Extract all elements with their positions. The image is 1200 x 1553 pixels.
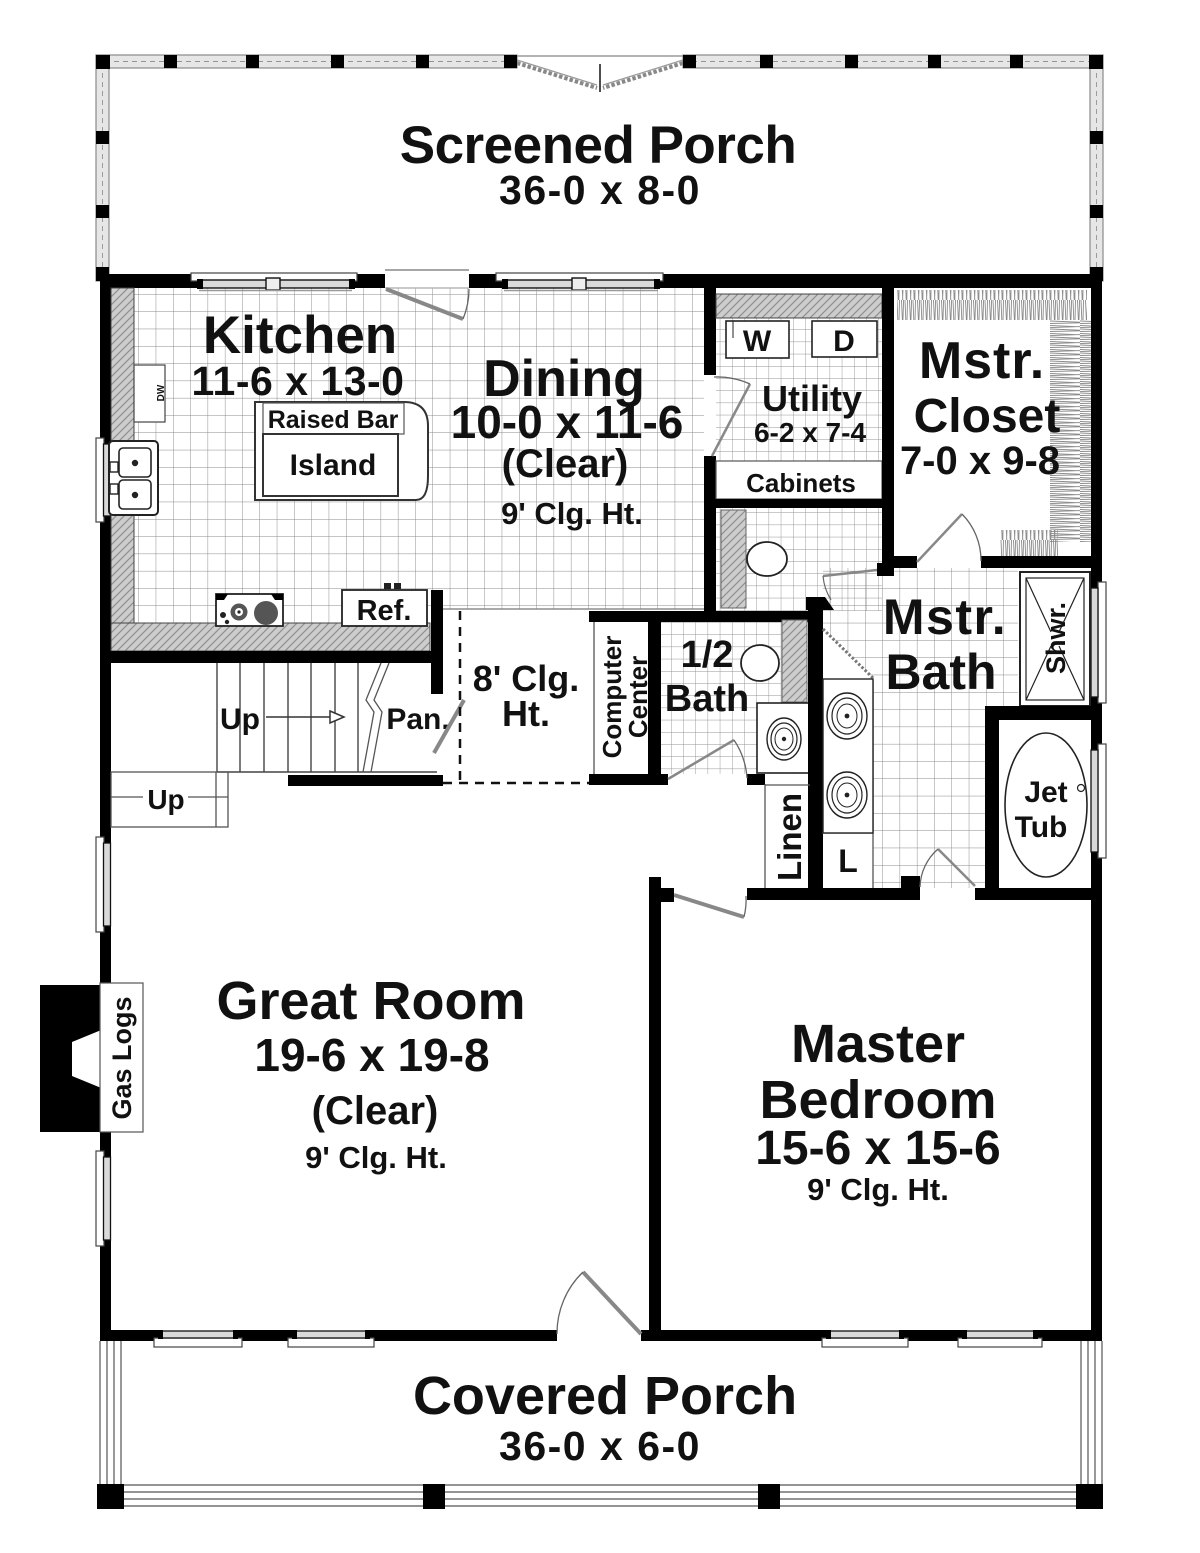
svg-text:Bath: Bath: [885, 644, 996, 700]
svg-text:Closet: Closet: [914, 390, 1061, 443]
svg-text:36-0 x 6-0: 36-0 x 6-0: [499, 1423, 701, 1469]
svg-text:Raised Bar: Raised Bar: [268, 406, 399, 434]
svg-text:9' Clg. Ht.: 9' Clg. Ht.: [305, 1140, 447, 1175]
svg-text:1/2: 1/2: [681, 634, 734, 676]
svg-text:7-0 x 9-8: 7-0 x 9-8: [900, 439, 1060, 483]
svg-text:6-2 x 7-4: 6-2 x 7-4: [754, 417, 866, 448]
svg-text:11-6 x 13-0: 11-6 x 13-0: [192, 358, 405, 404]
svg-text:DW: DW: [156, 384, 167, 401]
svg-text:Bedroom: Bedroom: [759, 1070, 996, 1130]
svg-text:Up: Up: [220, 703, 260, 736]
svg-text:Mstr.: Mstr.: [919, 332, 1045, 390]
svg-text:Cabinets: Cabinets: [746, 468, 856, 498]
svg-text:19-6 x 19-8: 19-6 x 19-8: [254, 1029, 489, 1081]
svg-text:Tub: Tub: [1015, 811, 1068, 844]
svg-text:Master: Master: [791, 1014, 965, 1074]
svg-text:15-6 x 15-6: 15-6 x 15-6: [755, 1122, 1001, 1175]
svg-text:Mstr.: Mstr.: [883, 589, 1007, 645]
svg-text:Bath: Bath: [665, 678, 749, 720]
svg-text:Kitchen: Kitchen: [203, 306, 397, 365]
svg-text:Linen: Linen: [771, 793, 808, 881]
svg-text:Gas Logs: Gas Logs: [107, 996, 137, 1119]
svg-text:9' Clg. Ht.: 9' Clg. Ht.: [807, 1172, 949, 1207]
svg-text:Pan.: Pan.: [386, 703, 449, 736]
svg-text:36-0 x 8-0: 36-0 x 8-0: [499, 167, 701, 213]
svg-text:Shwr.: Shwr.: [1041, 602, 1071, 674]
svg-text:(Clear): (Clear): [312, 1089, 439, 1133]
svg-text:W: W: [743, 325, 772, 358]
svg-text:Center: Center: [623, 656, 653, 738]
svg-text:Island: Island: [290, 449, 377, 482]
svg-text:D: D: [833, 325, 855, 358]
svg-text:Utility: Utility: [762, 378, 862, 419]
svg-text:Covered Porch: Covered Porch: [413, 1366, 797, 1426]
svg-text:Ht.: Ht.: [502, 693, 550, 734]
svg-text:L: L: [838, 843, 858, 879]
svg-text:10-0 x 11-6: 10-0 x 11-6: [451, 396, 684, 448]
svg-text:Jet: Jet: [1024, 776, 1067, 809]
svg-text:Ref.: Ref.: [357, 595, 412, 627]
svg-text:9' Clg. Ht.: 9' Clg. Ht.: [501, 496, 643, 531]
svg-text:(Clear): (Clear): [502, 442, 629, 486]
svg-text:Great Room: Great Room: [216, 971, 525, 1031]
svg-text:Up: Up: [147, 784, 184, 815]
